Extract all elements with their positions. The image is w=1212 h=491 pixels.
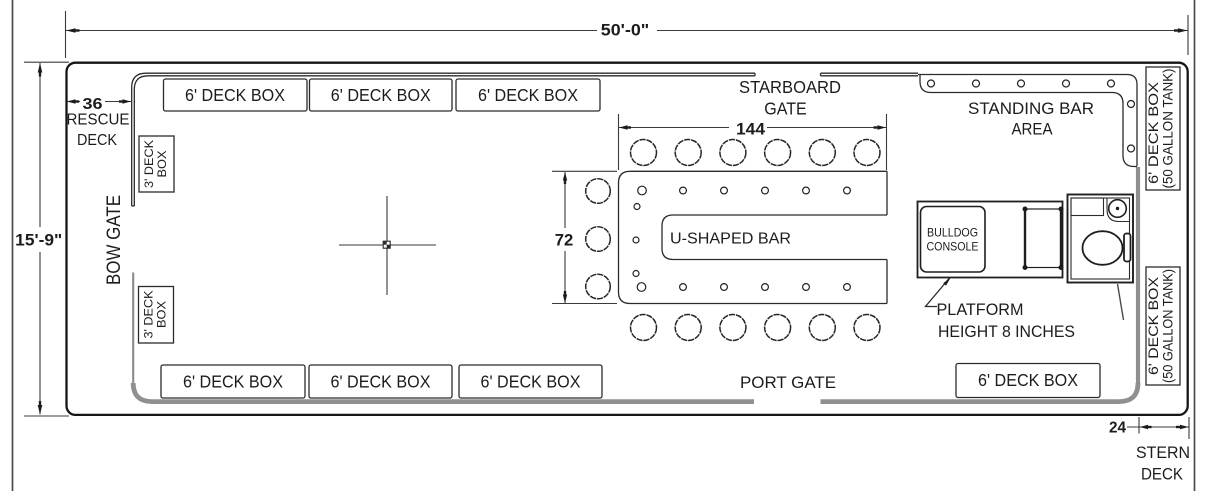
- svg-text:24: 24: [1109, 420, 1126, 437]
- svg-text:STARBOARD: STARBOARD: [739, 77, 841, 97]
- svg-text:(50 GALLON TANK): (50 GALLON TANK): [1161, 69, 1176, 189]
- svg-text:U-SHAPED BAR: U-SHAPED BAR: [670, 231, 791, 248]
- svg-text:6' DECK BOX: 6' DECK BOX: [183, 372, 283, 392]
- svg-text:6' DECK BOX: 6' DECK BOX: [978, 370, 1078, 390]
- svg-text:50'-0": 50'-0": [601, 22, 650, 40]
- svg-text:36: 36: [83, 96, 103, 113]
- svg-text:RESCUE: RESCUE: [67, 112, 130, 129]
- svg-text:6' DECK BOX: 6' DECK BOX: [331, 372, 431, 392]
- svg-text:6' DECK BOX: 6' DECK BOX: [1146, 82, 1161, 184]
- svg-text:GATE: GATE: [764, 99, 807, 119]
- svg-text:HEIGHT 8 INCHES: HEIGHT 8 INCHES: [938, 323, 1075, 341]
- svg-text:BOX: BOX: [155, 301, 169, 328]
- svg-text:(50 GALLON TANK): (50 GALLON TANK): [1161, 269, 1176, 383]
- svg-text:144: 144: [736, 121, 766, 139]
- svg-text:STERN: STERN: [1136, 443, 1190, 462]
- svg-text:DECK: DECK: [77, 132, 118, 149]
- svg-text:6' DECK BOX: 6' DECK BOX: [481, 372, 581, 392]
- svg-text:3' DECK: 3' DECK: [142, 140, 156, 188]
- svg-text:PORT GATE: PORT GATE: [740, 373, 836, 392]
- svg-text:6' DECK BOX: 6' DECK BOX: [478, 85, 578, 105]
- svg-text:6' DECK BOX: 6' DECK BOX: [1146, 277, 1161, 375]
- svg-text:BOX: BOX: [155, 151, 169, 178]
- svg-text:STANDING BAR: STANDING BAR: [968, 99, 1094, 118]
- svg-text:CONSOLE: CONSOLE: [927, 240, 979, 254]
- svg-text:BULLDOG: BULLDOG: [927, 226, 978, 240]
- svg-text:BOW GATE: BOW GATE: [103, 195, 125, 285]
- svg-text:6' DECK BOX: 6' DECK BOX: [331, 85, 431, 105]
- svg-text:3' DECK: 3' DECK: [142, 291, 156, 339]
- svg-text:DECK: DECK: [1141, 465, 1184, 484]
- svg-text:15'-9": 15'-9": [15, 231, 62, 250]
- svg-text:6' DECK BOX: 6' DECK BOX: [185, 85, 285, 105]
- svg-text:AREA: AREA: [1012, 120, 1054, 139]
- svg-text:PLATFORM: PLATFORM: [937, 301, 1024, 319]
- svg-text:72: 72: [555, 232, 574, 250]
